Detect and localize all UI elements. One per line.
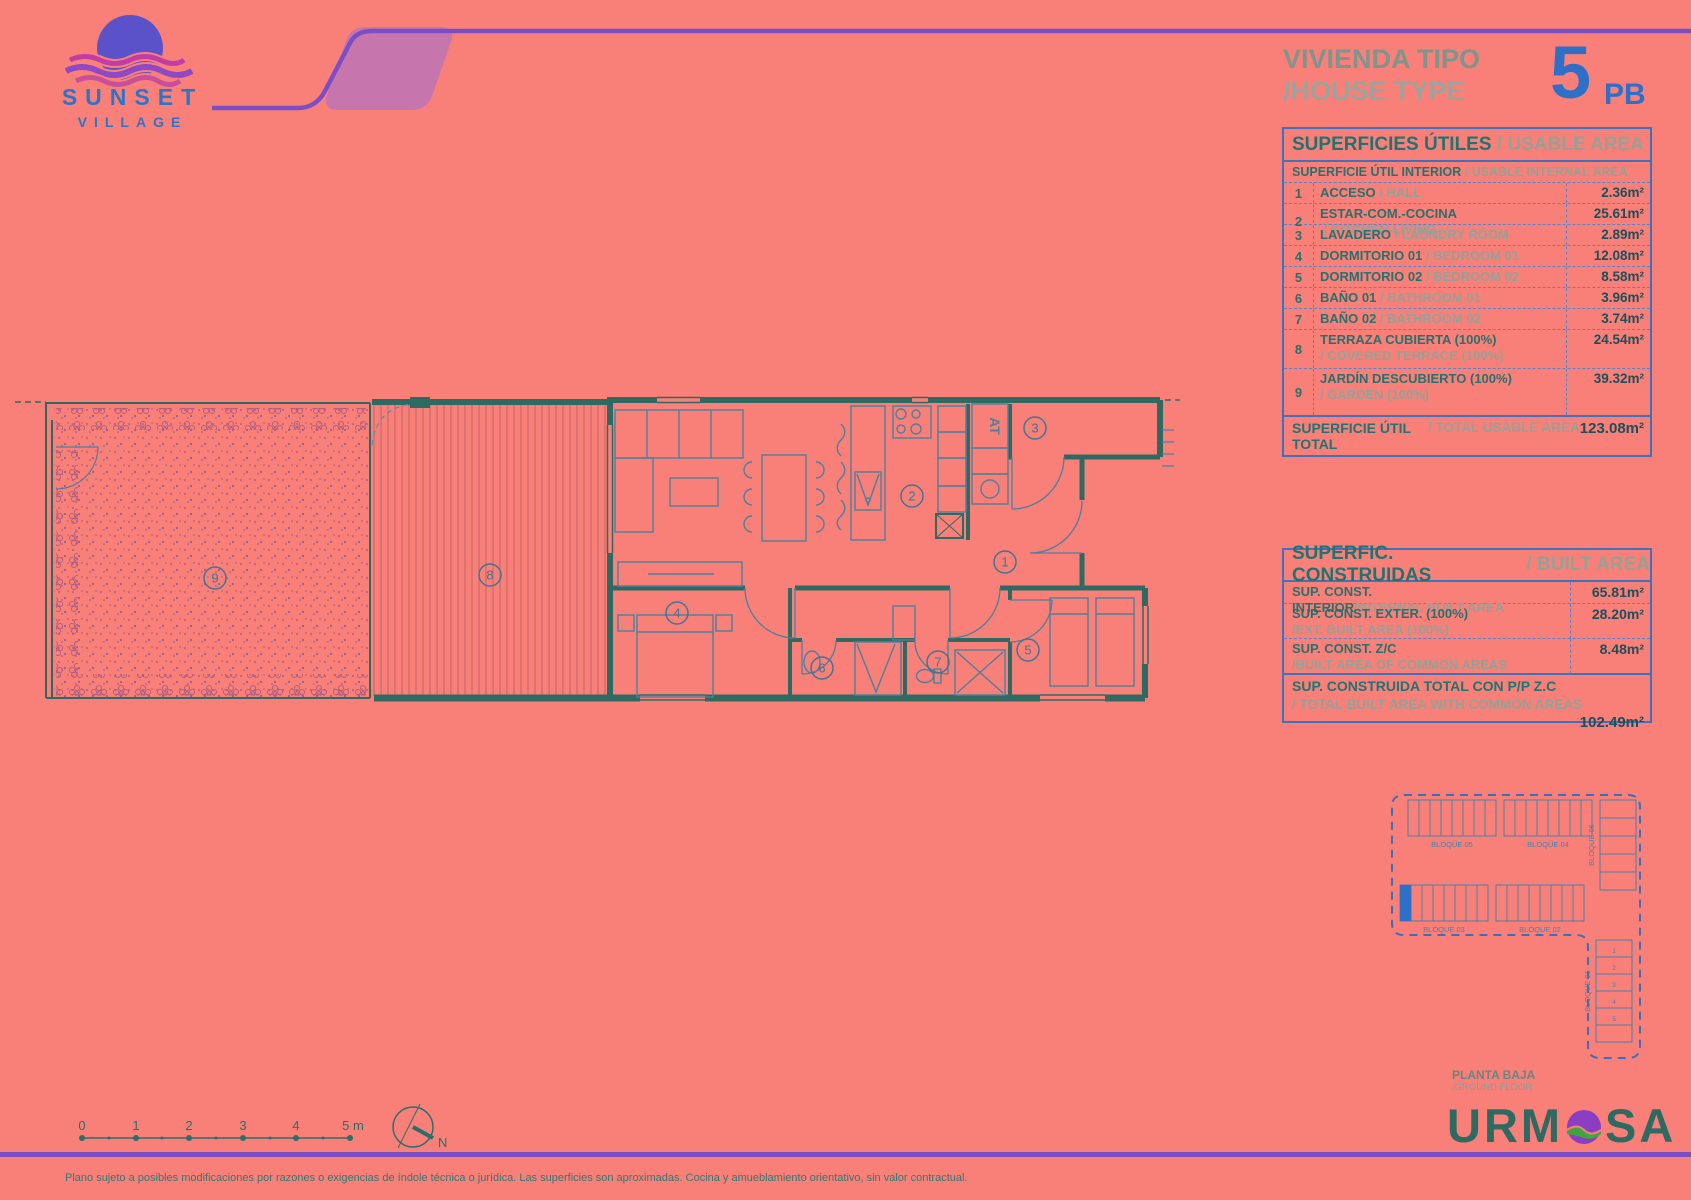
usable-area-row: 4DORMITORIO 01 / BEDROOM 0112.08m² — [1284, 246, 1650, 267]
unit-digit: 1 — [1612, 948, 1616, 955]
room-number-9: 9 — [211, 571, 218, 586]
usable-area-row: 5DORMITORIO 02 / BEDROOM 028.58m² — [1284, 267, 1650, 288]
flower-border — [56, 408, 366, 430]
logo-subname: VILLAGE — [40, 114, 225, 130]
ribbon-parallelogram — [326, 27, 452, 110]
unit-suffix: PB — [1604, 78, 1646, 112]
usable-area-row: 1ACCESO / HALL2.36m² — [1284, 183, 1650, 204]
urmosa-logo: URM SA — [1447, 1098, 1676, 1153]
garden-area — [15, 402, 370, 698]
usable-area-total-value: 123.08m² — [1580, 420, 1644, 437]
room-area: 2.36m² — [1566, 183, 1650, 203]
table-title-en: / USABLE AREA — [1492, 134, 1644, 156]
room-name-es: TERRAZA CUBIERTA (100%) — [1320, 332, 1496, 347]
scale-tick: 4 — [292, 1118, 299, 1133]
usable-area-total-row: SUPERFICIE ÚTIL TOTAL / TOTAL USABLE ARE… — [1284, 415, 1650, 455]
terrace-area — [372, 397, 607, 696]
coffee-table — [670, 478, 718, 506]
disclaimer-text: Plano sujeto a posibles modificaciones p… — [65, 1172, 1645, 1184]
highlighted-unit — [1400, 885, 1411, 921]
at-label: AT — [987, 417, 1003, 435]
block-label: BLOQUE 03 — [1423, 925, 1465, 934]
room-area: 24.54m² — [1566, 330, 1650, 368]
room-name-en: / HALL — [1376, 185, 1422, 200]
usable-area-row: 8TERRAZA CUBIERTA (100%)/ COVERED TERRAC… — [1284, 330, 1650, 369]
bed-single — [1096, 598, 1134, 686]
built-area-total-value: 102.49m² — [1580, 714, 1644, 731]
row-number: 5 — [1284, 267, 1314, 287]
kitchen-counter — [851, 406, 885, 540]
room-name-en: / BEDROOM 01 — [1422, 248, 1519, 263]
urmosa-o-icon — [1565, 1108, 1603, 1146]
shaft — [936, 514, 963, 538]
room-name-es: DORMITORIO 01 — [1320, 248, 1422, 263]
logo-wordmark: SUNSET VILLAGE — [40, 84, 225, 130]
room-area: 3.96m² — [1566, 288, 1650, 308]
fridge — [938, 406, 966, 432]
unit-digit: 4 — [1612, 999, 1616, 1006]
scale-tick: 5 m — [342, 1118, 364, 1133]
page-title-es: VIVIENDA TIPO — [1283, 44, 1480, 75]
built-label-en: /EXT. BUILT AREA (100%) — [1292, 622, 1566, 638]
usable-area-row: 9JARDÍN DESCUBIERTO (100%)/ GARDEN (100%… — [1284, 369, 1650, 415]
usable-area-row: 2ESTAR-COM.-COCINA / KITCHEN-LIVING25.61… — [1284, 204, 1650, 225]
chairs — [744, 462, 752, 532]
room-number-5: 5 — [1024, 643, 1031, 658]
toilet — [917, 670, 934, 683]
built-value: 28.20m² — [1570, 604, 1650, 639]
room-name-es: ESTAR-COM.-COCINA — [1320, 206, 1457, 221]
room-area: 12.08m² — [1566, 246, 1650, 266]
room-name-en: / COVERED TERRACE (100%) — [1320, 348, 1562, 364]
plan-sheet: SUNSET VILLAGE VIVIENDA TIPO /HOUSE TYPE… — [0, 0, 1691, 1200]
scale-tick: 0 — [78, 1118, 85, 1133]
row-number: 4 — [1284, 246, 1314, 266]
room-area: 39.32m² — [1566, 369, 1650, 415]
block-label: BLOQUE 04 — [1527, 840, 1569, 849]
room-area: 3.74m² — [1566, 309, 1650, 329]
room-area: 8.58m² — [1566, 267, 1650, 287]
usable-area-row: 3LAVADERO / LAUNDRY ROOM2.89m² — [1284, 225, 1650, 246]
room-number-4: 4 — [673, 606, 680, 621]
unit-digit: 2 — [1612, 965, 1616, 972]
block-label: BLOQUE 05 — [1431, 840, 1473, 849]
built-label-en: /BUILT AREA OF COMMON AREAS — [1292, 657, 1566, 673]
built-area-table: SUPERFIC. CONSTRUIDAS / BUILT AREA SUP. … — [1282, 548, 1652, 723]
unit-digits: 12345 — [1612, 948, 1616, 1023]
room-name-es: DORMITORIO 02 — [1320, 269, 1422, 284]
sunset-village-logo-icon — [52, 10, 212, 90]
built-area-total-row: SUP. CONSTRUIDA TOTAL CON P/P Z.C / TOTA… — [1284, 673, 1650, 721]
room-name-es: ACCESO — [1320, 185, 1376, 200]
row-number: 3 — [1284, 225, 1314, 245]
row-number: 1 — [1284, 183, 1314, 203]
vanity — [893, 606, 915, 640]
room-number-1: 1 — [1001, 555, 1008, 570]
usable-area-table: SUPERFICIES ÚTILES / USABLE AREA SUPERFI… — [1282, 127, 1652, 457]
built-label-es: SUP. CONST. EXTER. (100%) — [1292, 606, 1468, 621]
unit-number: 5 — [1550, 30, 1591, 115]
north-compass-icon: N — [393, 1104, 447, 1150]
hall-door — [950, 588, 1000, 638]
page-title-en: /HOUSE TYPE — [1283, 76, 1465, 107]
folding-glazing — [837, 424, 845, 530]
room-number-6: 6 — [818, 661, 825, 676]
usable-area-row: 6BAÑO 01 / BATHROOM 013.96m² — [1284, 288, 1650, 309]
flower-border — [56, 450, 78, 674]
room-name-es: JARDÍN DESCUBIERTO (100%) — [1320, 371, 1512, 386]
brand-left: URM — [1447, 1098, 1563, 1153]
unit-digit: 3 — [1612, 982, 1616, 989]
built-area-row: SUP. CONST. EXTER. (100%)/EXT. BUILT ARE… — [1284, 604, 1650, 639]
room-name-en: / LAUNDRY ROOM — [1391, 227, 1509, 242]
bed-double — [637, 615, 713, 697]
room-name-es: BAÑO 02 — [1320, 311, 1376, 326]
row-number: 6 — [1284, 288, 1314, 308]
block-label: BLOQUE 06 — [1587, 824, 1596, 866]
usable-area-table-subheader: SUPERFICIE ÚTIL INTERIOR / USABLE INTERN… — [1284, 162, 1650, 183]
bath2-door — [915, 640, 948, 674]
site-plan-caption: PLANTA BAJA /GROUND FLOOR — [1452, 1068, 1535, 1093]
bed-single — [1050, 598, 1088, 686]
room-number-7: 7 — [934, 655, 941, 670]
boiler — [981, 480, 999, 498]
footer-divider — [0, 1152, 1691, 1157]
built-area-table-header: SUPERFIC. CONSTRUIDAS / BUILT AREA — [1284, 550, 1650, 582]
block-label: BLOQUE 02 — [1519, 925, 1561, 934]
dining-table — [762, 455, 806, 541]
site-key-plan: BLOQUE 05 BLOQUE 04 BLOQUE 06 BLOQUE 03 … — [1390, 790, 1646, 1095]
floor-plan: AT 1 2 3 4 5 6 7 8 9 — [15, 395, 1180, 705]
room-name-en: / BEDROOM 02 — [1422, 269, 1519, 284]
room-name-es: BAÑO 01 — [1320, 290, 1376, 305]
bedroom1-door — [745, 588, 795, 638]
brand-right: SA — [1605, 1098, 1676, 1153]
built-label-es: SUP. CONST. Z/C — [1292, 641, 1397, 656]
built-area-rows: SUP. CONST. INTERIOR/INTERNAL BUILT AREA… — [1284, 582, 1650, 673]
block-label: BLOQUE 01 — [1583, 970, 1592, 1012]
scale-tick: 2 — [185, 1118, 192, 1133]
row-number: 9 — [1284, 369, 1314, 415]
room-name-en: / BATHROOM 01 — [1376, 290, 1481, 305]
laundry-door — [1012, 457, 1064, 509]
scale-tick: 3 — [239, 1118, 246, 1133]
room-name-en: / GARDEN (100%) — [1320, 387, 1562, 403]
usable-area-table-header: SUPERFICIES ÚTILES / USABLE AREA — [1284, 129, 1650, 162]
scale-tick: 1 — [132, 1118, 139, 1133]
site-blocks — [1400, 800, 1636, 1042]
usable-area-rows: 1ACCESO / HALL2.36m²2ESTAR-COM.-COCINA /… — [1284, 183, 1650, 415]
room-number-8: 8 — [486, 568, 493, 583]
room-name-en: / BATHROOM 02 — [1376, 311, 1481, 326]
room-name-es: LAVADERO — [1320, 227, 1391, 242]
room-number-2: 2 — [908, 489, 915, 504]
furniture — [615, 404, 1134, 697]
stove — [893, 406, 931, 438]
row-number: 7 — [1284, 309, 1314, 329]
built-area-row: SUP. CONST. Z/C/BUILT AREA OF COMMON ARE… — [1284, 639, 1650, 673]
built-value: 8.48m² — [1570, 639, 1650, 674]
row-number: 8 — [1284, 330, 1314, 368]
room-area: 2.89m² — [1566, 225, 1650, 245]
logo-name: SUNSET — [40, 84, 225, 111]
unit-digit: 5 — [1612, 1016, 1616, 1023]
north-label: N — [438, 1135, 447, 1150]
built-area-row: SUP. CONST. INTERIOR/INTERNAL BUILT AREA… — [1284, 582, 1650, 604]
table-title-es: SUPERFICIES ÚTILES — [1292, 134, 1492, 156]
chairs — [816, 462, 824, 532]
usable-area-row: 7BAÑO 02 / BATHROOM 023.74m² — [1284, 309, 1650, 330]
flower-border — [56, 674, 366, 696]
room-number-3: 3 — [1031, 421, 1038, 436]
bedroom2-door — [1010, 600, 1052, 642]
entry-door — [1030, 501, 1082, 553]
